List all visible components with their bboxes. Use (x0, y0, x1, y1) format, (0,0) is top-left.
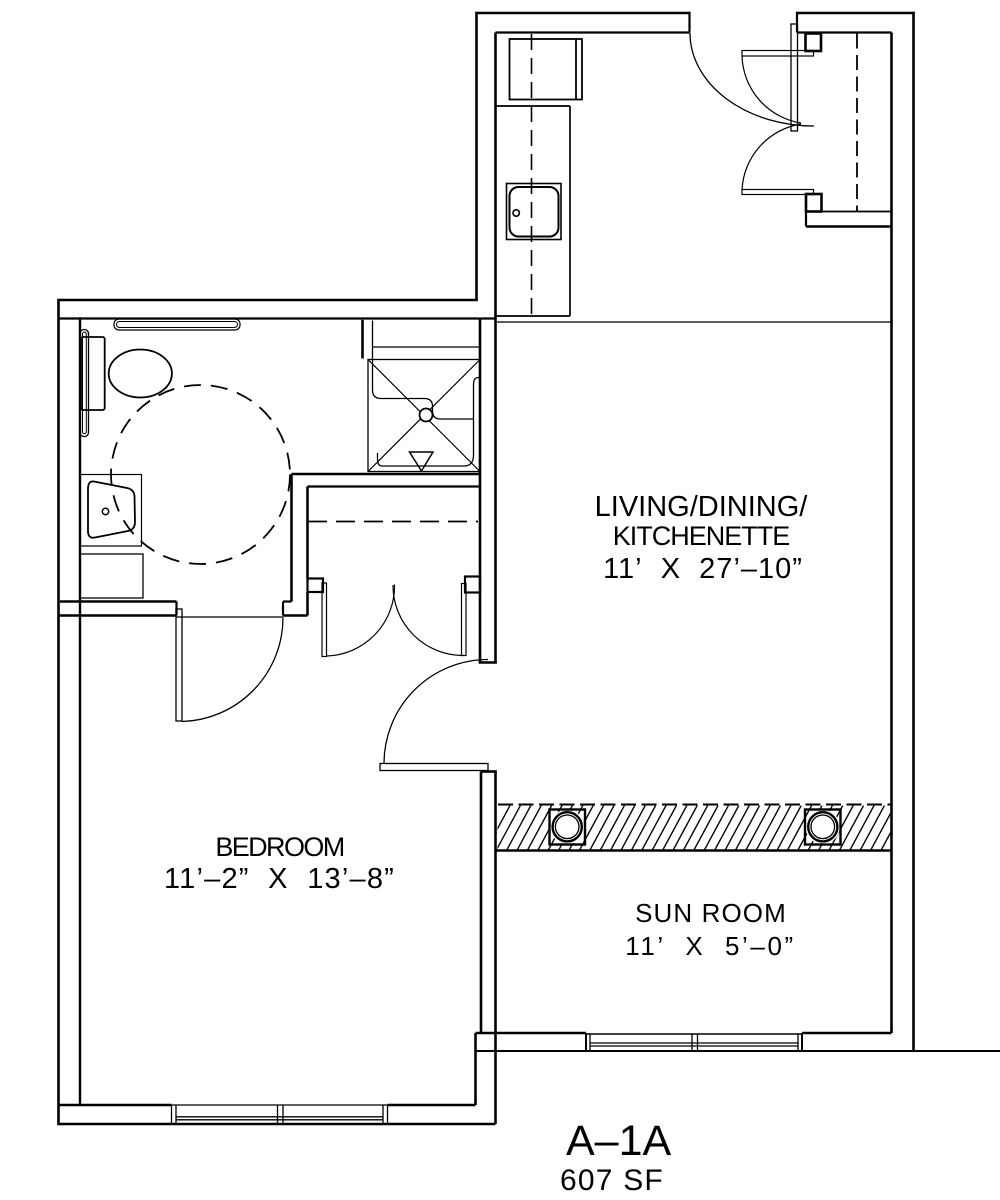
svg-text:11’–2” X 13’–8”: 11’–2” X 13’–8” (164, 863, 395, 895)
svg-text:11’ X 27’–10”: 11’ X 27’–10” (603, 553, 803, 585)
svg-text:607 SF: 607 SF (560, 1164, 664, 1197)
svg-text:BEDROOM: BEDROOM (215, 832, 343, 862)
svg-text:11’ X 5’–0”: 11’ X 5’–0” (625, 931, 796, 961)
svg-text:KITCHENETTE: KITCHENETTE (613, 521, 790, 551)
svg-text:A–1A: A–1A (566, 1117, 672, 1165)
svg-text:SUN ROOM: SUN ROOM (635, 898, 787, 928)
svg-text:LIVING/DINING/: LIVING/DINING/ (595, 491, 809, 523)
